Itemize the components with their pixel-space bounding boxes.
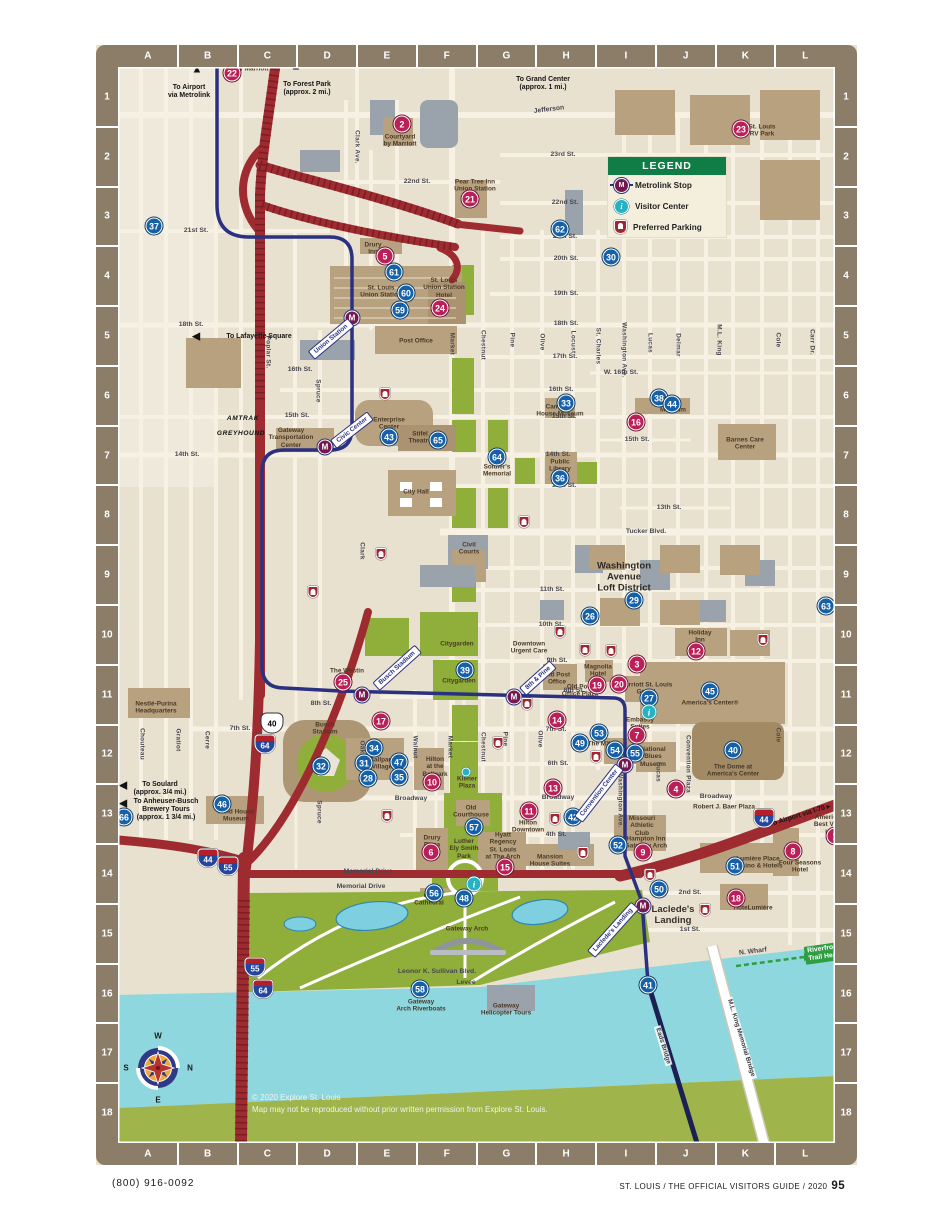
grid-tick: [96, 126, 118, 128]
grid-col-H: H: [563, 51, 570, 62]
grid-row-14-right: 14: [840, 869, 851, 880]
grid-row-18-right: 18: [840, 1108, 851, 1119]
grid-col-J-bottom: J: [683, 1149, 689, 1160]
grid-tick: [356, 45, 358, 67]
grid-col-K-bottom: K: [742, 1149, 749, 1160]
grid-row-18: 18: [101, 1108, 112, 1119]
grid-col-E: E: [384, 51, 391, 62]
grid-row-1-right: 1: [843, 91, 849, 102]
grid-col-B-bottom: B: [204, 1149, 211, 1160]
grid-tick: [296, 1143, 298, 1165]
grid-row-11: 11: [102, 689, 113, 700]
grid-tick: [835, 783, 857, 785]
grid-row-5: 5: [104, 331, 110, 342]
grid-row-6: 6: [104, 390, 110, 401]
grid-row-15: 15: [101, 928, 112, 939]
grid-row-4: 4: [104, 271, 110, 282]
grid-tick: [177, 45, 179, 67]
grid-tick: [835, 843, 857, 845]
grid-tick: [835, 963, 857, 965]
grid-tick: [96, 783, 118, 785]
grid-tick: [835, 664, 857, 666]
grid-labels: AABBCCDDEEFFGGHHIIJJKKLL1122334455667788…: [0, 0, 933, 1225]
grid-row-8: 8: [104, 510, 110, 521]
grid-col-L: L: [802, 51, 808, 62]
grid-tick: [476, 1143, 478, 1165]
grid-row-17: 17: [101, 1048, 112, 1059]
grid-row-8-right: 8: [843, 510, 849, 521]
grid-tick: [655, 45, 657, 67]
grid-col-I: I: [624, 51, 627, 62]
grid-tick: [356, 1143, 358, 1165]
grid-tick: [774, 1143, 776, 1165]
grid-col-H-bottom: H: [563, 1149, 570, 1160]
grid-tick: [96, 305, 118, 307]
grid-tick: [835, 245, 857, 247]
grid-tick: [835, 186, 857, 188]
grid-col-A: A: [144, 51, 151, 62]
grid-tick: [96, 484, 118, 486]
grid-tick: [237, 1143, 239, 1165]
grid-row-10-right: 10: [840, 629, 851, 640]
grid-tick: [416, 45, 418, 67]
grid-row-11-right: 11: [841, 689, 852, 700]
grid-tick: [835, 604, 857, 606]
grid-tick: [595, 45, 597, 67]
grid-col-D: D: [324, 51, 331, 62]
grid-tick: [96, 843, 118, 845]
grid-col-K: K: [742, 51, 749, 62]
grid-tick: [835, 544, 857, 546]
grid-tick: [96, 604, 118, 606]
grid-tick: [835, 903, 857, 905]
grid-col-D-bottom: D: [324, 1149, 331, 1160]
grid-tick: [835, 1082, 857, 1084]
grid-tick: [416, 1143, 418, 1165]
grid-row-5-right: 5: [843, 331, 849, 342]
grid-tick: [655, 1143, 657, 1165]
grid-row-9: 9: [104, 570, 110, 581]
grid-row-13-right: 13: [840, 809, 851, 820]
grid-col-L-bottom: L: [802, 1149, 808, 1160]
grid-col-J: J: [683, 51, 689, 62]
grid-row-1: 1: [104, 91, 110, 102]
grid-row-13: 13: [101, 809, 112, 820]
grid-col-F: F: [444, 51, 450, 62]
grid-col-C: C: [264, 51, 271, 62]
grid-tick: [476, 45, 478, 67]
grid-tick: [96, 724, 118, 726]
grid-tick: [715, 1143, 717, 1165]
grid-tick: [774, 45, 776, 67]
grid-row-14: 14: [101, 869, 112, 880]
grid-row-7-right: 7: [843, 450, 849, 461]
grid-tick: [296, 45, 298, 67]
grid-tick: [96, 425, 118, 427]
grid-row-7: 7: [104, 450, 110, 461]
grid-tick: [835, 1022, 857, 1024]
grid-col-A-bottom: A: [144, 1149, 151, 1160]
grid-row-16-right: 16: [840, 988, 851, 999]
grid-row-15-right: 15: [840, 928, 851, 939]
grid-col-G-bottom: G: [502, 1149, 510, 1160]
grid-tick: [595, 1143, 597, 1165]
grid-tick: [535, 45, 537, 67]
grid-row-16: 16: [101, 988, 112, 999]
grid-tick: [835, 126, 857, 128]
grid-tick: [96, 963, 118, 965]
grid-tick: [96, 903, 118, 905]
grid-row-12: 12: [101, 749, 112, 760]
grid-row-17-right: 17: [840, 1048, 851, 1059]
grid-tick: [835, 305, 857, 307]
grid-tick: [835, 365, 857, 367]
grid-tick: [715, 45, 717, 67]
grid-row-9-right: 9: [843, 570, 849, 581]
grid-tick: [535, 1143, 537, 1165]
grid-tick: [835, 425, 857, 427]
grid-col-G: G: [502, 51, 510, 62]
visitors-guide-map-page: LEGEND MMetrolink StopiVisitor CenterPre…: [0, 0, 933, 1225]
grid-col-F-bottom: F: [444, 1149, 450, 1160]
grid-tick: [177, 1143, 179, 1165]
grid-row-3: 3: [104, 211, 110, 222]
grid-tick: [96, 245, 118, 247]
grid-tick: [96, 1082, 118, 1084]
grid-tick: [96, 664, 118, 666]
grid-tick: [96, 544, 118, 546]
grid-row-3-right: 3: [843, 211, 849, 222]
grid-col-I-bottom: I: [624, 1149, 627, 1160]
grid-row-4-right: 4: [843, 271, 849, 282]
grid-row-12-right: 12: [840, 749, 851, 760]
grid-tick: [237, 45, 239, 67]
grid-tick: [96, 365, 118, 367]
grid-col-B: B: [204, 51, 211, 62]
grid-row-2: 2: [104, 151, 110, 162]
grid-tick: [96, 186, 118, 188]
grid-tick: [835, 484, 857, 486]
grid-col-C-bottom: C: [264, 1149, 271, 1160]
grid-tick: [835, 724, 857, 726]
grid-row-10: 10: [101, 629, 112, 640]
grid-tick: [96, 1022, 118, 1024]
grid-row-6-right: 6: [843, 390, 849, 401]
grid-col-E-bottom: E: [384, 1149, 391, 1160]
grid-row-2-right: 2: [843, 151, 849, 162]
